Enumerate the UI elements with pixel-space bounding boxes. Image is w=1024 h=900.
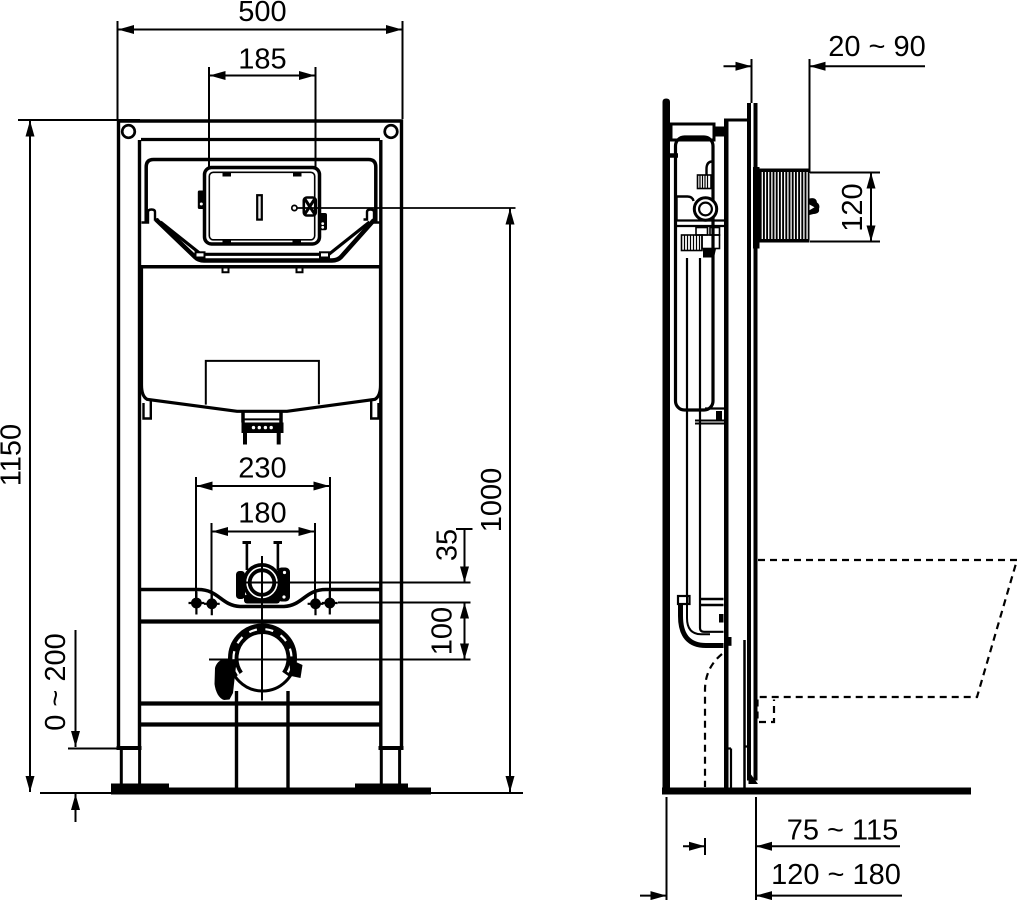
- svg-text:185: 185: [238, 44, 286, 76]
- svg-text:0 ~ 200: 0 ~ 200: [40, 633, 72, 731]
- svg-text:120: 120: [837, 183, 869, 231]
- svg-text:120 ~ 180: 120 ~ 180: [771, 859, 901, 891]
- svg-text:1000: 1000: [476, 468, 508, 533]
- svg-text:230: 230: [238, 453, 286, 485]
- svg-text:35: 35: [432, 529, 464, 561]
- svg-text:500: 500: [238, 0, 286, 28]
- svg-text:180: 180: [238, 498, 286, 530]
- svg-text:75 ~ 115: 75 ~ 115: [787, 815, 899, 847]
- svg-text:100: 100: [427, 607, 459, 655]
- svg-text:20 ~ 90: 20 ~ 90: [828, 31, 926, 63]
- svg-text:1150: 1150: [0, 424, 28, 486]
